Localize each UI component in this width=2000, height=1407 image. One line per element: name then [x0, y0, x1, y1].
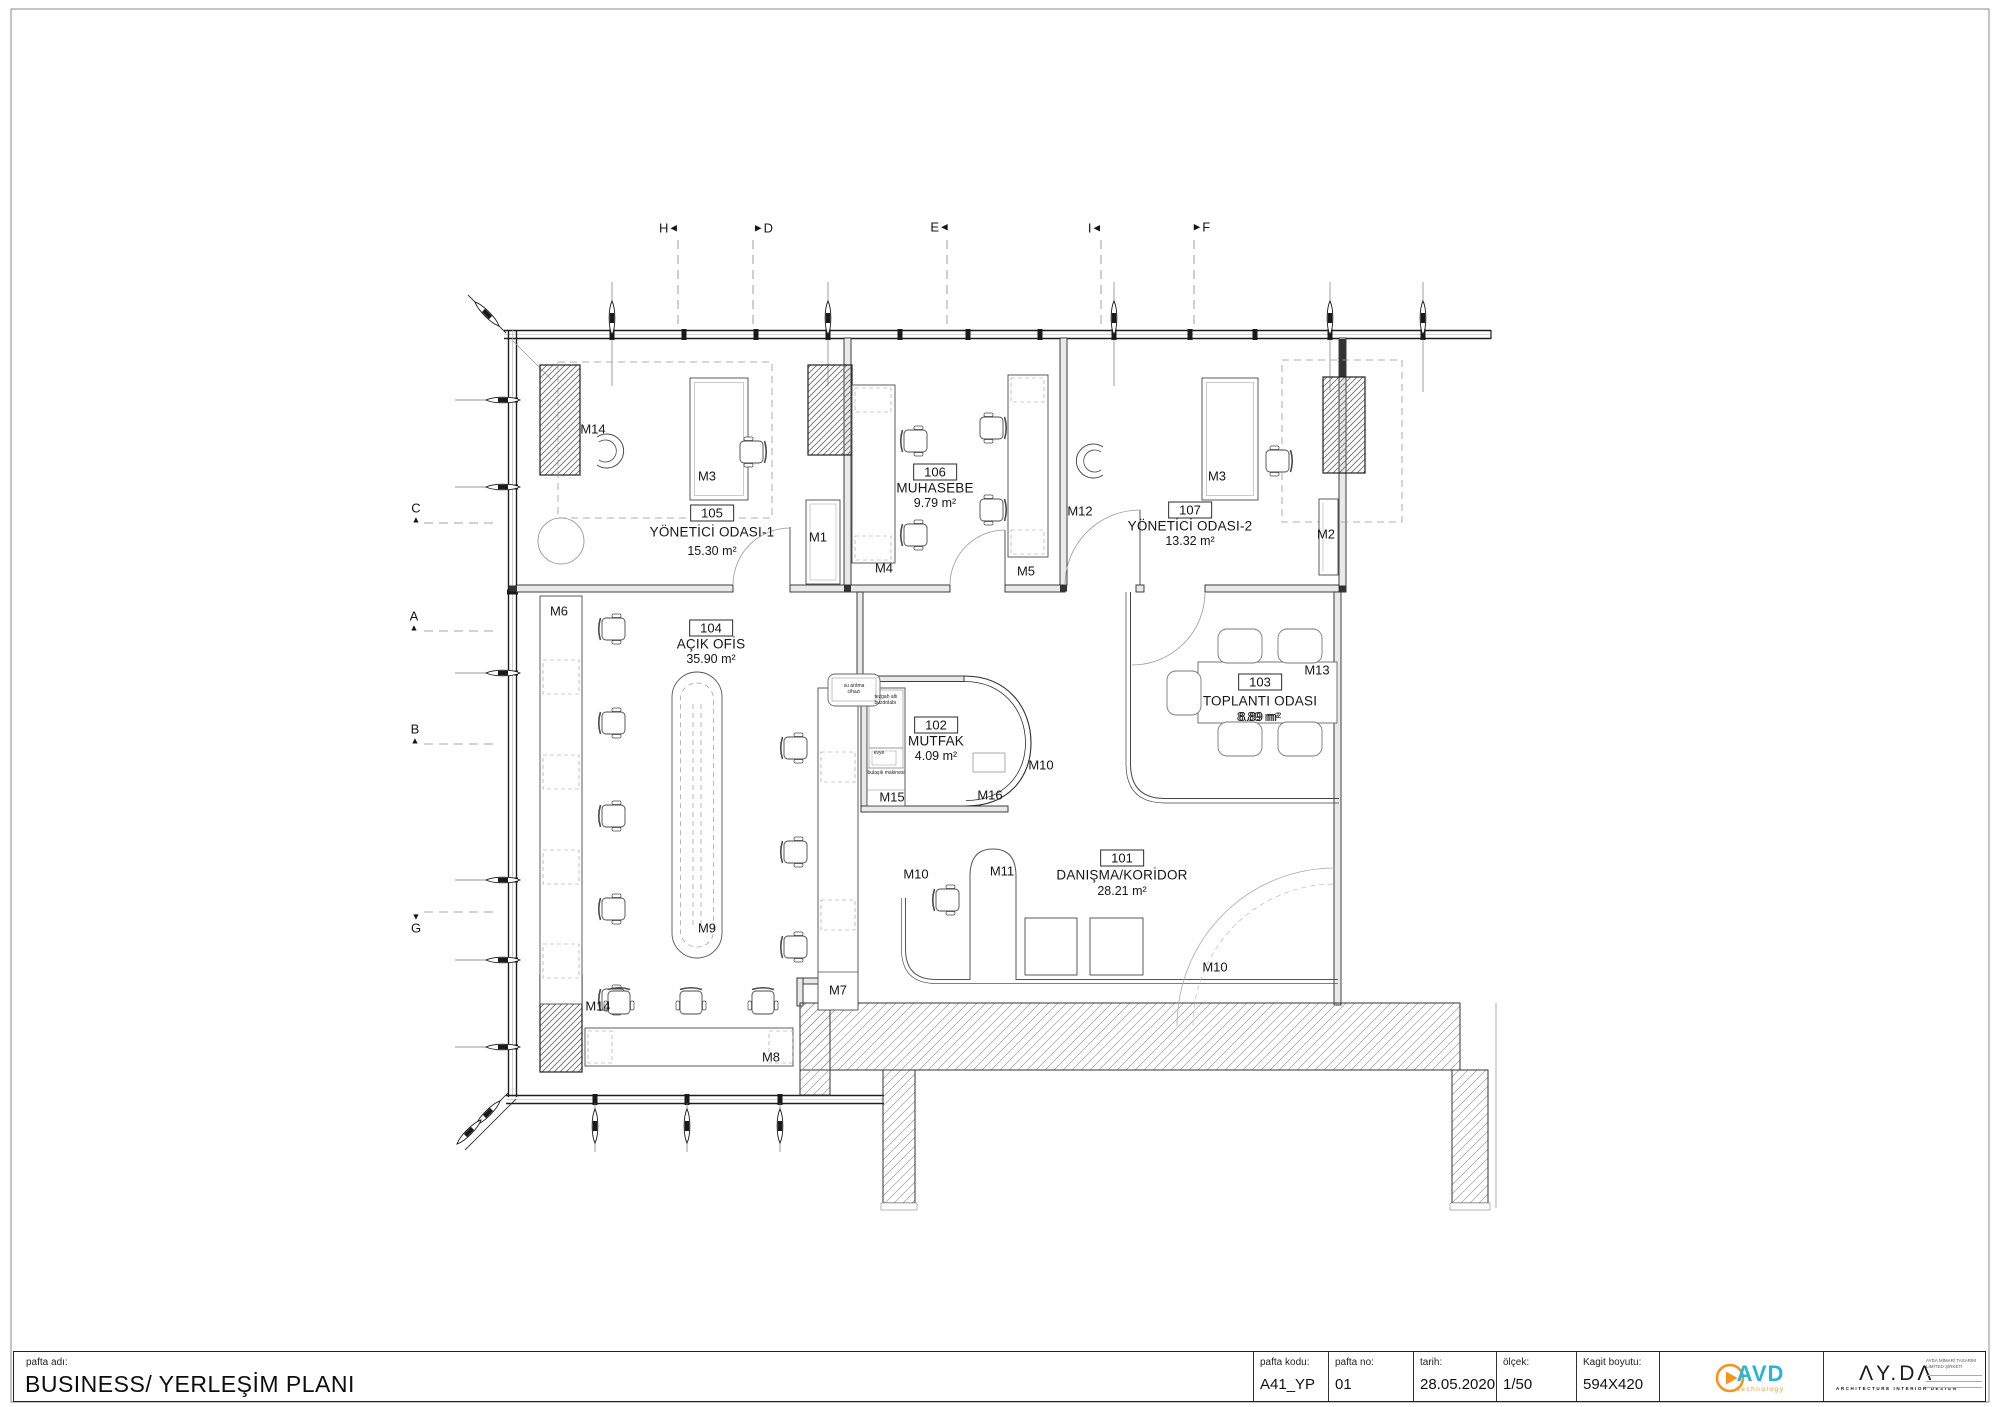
room-area-103: 8.89 m² — [1239, 710, 1281, 724]
furniture-label-m7: M7 — [829, 983, 847, 998]
room-name-104: AÇIK OFİS — [677, 637, 746, 652]
grid-marker-g: ▼G — [411, 913, 421, 936]
divider — [1496, 1352, 1497, 1401]
triangle-icon: ▶ — [755, 224, 762, 233]
divider — [1823, 1352, 1824, 1401]
sheet-border — [11, 9, 1989, 1402]
room-number-101: 101 — [1100, 850, 1144, 867]
field-tarih-value: 28.05.2020 — [1420, 1376, 1495, 1393]
grid-marker-a: A▲ — [410, 610, 419, 633]
room-area-107: 13.32 m² — [1165, 534, 1214, 548]
furniture-label-m10-3: M10 — [1202, 960, 1227, 975]
furniture-label-m3: M3 — [698, 469, 716, 484]
furniture-label-m6: M6 — [550, 604, 568, 619]
avd-logo: AVD technology — [1686, 1360, 1812, 1396]
room-area-102: 4.09 m² — [915, 749, 957, 763]
label-buzdolabi: tezgah altıbuzdolabı — [874, 694, 897, 707]
triangle-icon: ▲ — [412, 515, 421, 524]
field-pafta-adi-label: pafta adı: — [26, 1357, 68, 1368]
room-number-102: 102 — [914, 717, 958, 734]
room-number-104: 104 — [689, 620, 733, 637]
company-stamp: AYDA MİMARİ TASARIM LİMİTED ŞİRKETİ — [1926, 1358, 1982, 1388]
furniture-label-m15: M15 — [879, 790, 904, 805]
furniture-label-m2: M2 — [1317, 527, 1335, 542]
triangle-icon: ◀ — [670, 224, 677, 233]
stamp-signature — [1926, 1384, 1982, 1388]
sheet-title: BUSINESS/ YERLEŞİM PLANI — [25, 1371, 355, 1398]
field-pafta-kodu-value: A41_YP — [1260, 1376, 1315, 1393]
drawing-sheet: H◀ ▶D E◀ I◀ ▶F C▲ A▲ B▲ ▼G 105 YÖNETİCİ … — [0, 0, 2000, 1407]
field-olcek-label: ölçek: — [1503, 1357, 1529, 1368]
grid-marker-h: H◀ — [659, 221, 677, 236]
furniture-label-m8: M8 — [762, 1050, 780, 1065]
triangle-icon: ▲ — [411, 736, 420, 745]
room-area-105: 15.30 m² — [687, 544, 736, 558]
field-pafta-kodu-label: pafta kodu: — [1260, 1357, 1309, 1368]
room-area-104: 35.90 m² — [686, 652, 735, 666]
field-kagit-value: 594X420 — [1583, 1376, 1643, 1393]
divider — [1328, 1352, 1329, 1401]
furniture-label-m14: M14 — [580, 422, 605, 437]
triangle-icon: ▲ — [410, 623, 419, 632]
avd-logo-subtext: technology — [1738, 1386, 1784, 1393]
label-evye: evye — [874, 750, 885, 756]
divider — [1413, 1352, 1414, 1401]
triangle-icon: ◀ — [941, 223, 948, 232]
room-number-105: 105 — [690, 505, 734, 522]
room-number-107: 107 — [1168, 502, 1212, 519]
furniture-label-m1: M1 — [809, 530, 827, 545]
divider — [1253, 1352, 1254, 1401]
furniture-label-m9: M9 — [698, 921, 716, 936]
field-tarih-label: tarih: — [1420, 1357, 1442, 1368]
furniture-label-m10-2: M10 — [903, 867, 928, 882]
furniture-label-m5: M5 — [1017, 564, 1035, 579]
triangle-icon: ◀ — [1094, 224, 1101, 233]
furniture-label-m11: M11 — [990, 864, 1014, 879]
grid-marker-f: ▶F — [1194, 220, 1211, 235]
grid-marker-c: C▲ — [411, 502, 420, 525]
furniture-label-m3-2: M3 — [1208, 469, 1226, 484]
field-olcek-value: 1/50 — [1503, 1376, 1532, 1393]
room-name-105: YÖNETİCİ ODASI-1 — [650, 525, 775, 540]
triangle-icon: ▶ — [1194, 223, 1201, 232]
furniture-label-m4: M4 — [875, 561, 893, 576]
stamp-signature — [1926, 1372, 1982, 1376]
furniture-label-m14-2: M14 — [585, 999, 610, 1014]
room-name-103: TOPLANTI ODASI — [1203, 694, 1317, 709]
room-area-101: 28.21 m² — [1097, 884, 1146, 898]
grid-marker-e: E◀ — [930, 220, 947, 235]
ayda-logo-text: ΛY.DΛ — [1859, 1362, 1934, 1385]
stamp-line-1: AYDA MİMARİ TASARIM — [1926, 1358, 1982, 1364]
divider — [1659, 1352, 1660, 1401]
floor-plan-svg — [0, 0, 2000, 1407]
divider — [1576, 1352, 1577, 1401]
field-kagit-label: Kagit boyutu: — [1583, 1357, 1641, 1368]
avd-logo-text: AVD — [1737, 1363, 1785, 1385]
room-area-106: 9.79 m² — [914, 496, 956, 510]
room-number-103: 103 — [1238, 674, 1282, 691]
label-su-aritma: su arıtmacihazı — [844, 683, 865, 696]
field-pafta-no-value: 01 — [1335, 1376, 1352, 1393]
grid-marker-d: ▶D — [755, 221, 773, 236]
furniture-label-m13: M13 — [1304, 663, 1329, 678]
dashed-regions — [558, 360, 1402, 522]
stamp-line-2: LİMİTED ŞİRKETİ — [1926, 1364, 1982, 1370]
room-number-106: 106 — [913, 464, 957, 481]
room-name-101: DANIŞMA/KORİDOR — [1056, 868, 1187, 883]
room-name-102: MUTFAK — [908, 734, 964, 749]
label-bulasik: bulaşık makinesi — [868, 770, 905, 776]
furniture-label-m16: M16 — [977, 788, 1002, 803]
stamp-signature — [1926, 1378, 1982, 1382]
room-name-106: MUHASEBE — [896, 481, 973, 496]
hatched-structure — [800, 1003, 1496, 1210]
furniture-label-m10: M10 — [1028, 758, 1053, 773]
grid-marker-b: B▲ — [411, 723, 420, 746]
grid-marker-i: I◀ — [1088, 221, 1100, 236]
room-name-107: YÖNETİCİ ODASI-2 — [1128, 519, 1253, 534]
field-pafta-no-label: pafta no: — [1335, 1357, 1374, 1368]
furniture-label-m12: M12 — [1067, 504, 1092, 519]
